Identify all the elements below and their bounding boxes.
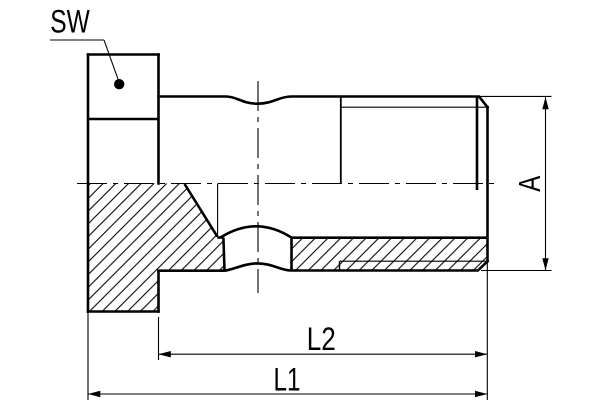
svg-text:SW: SW [50, 4, 90, 40]
svg-text:L2: L2 [307, 321, 336, 357]
svg-text:A: A [512, 175, 547, 191]
svg-text:L1: L1 [274, 362, 301, 398]
